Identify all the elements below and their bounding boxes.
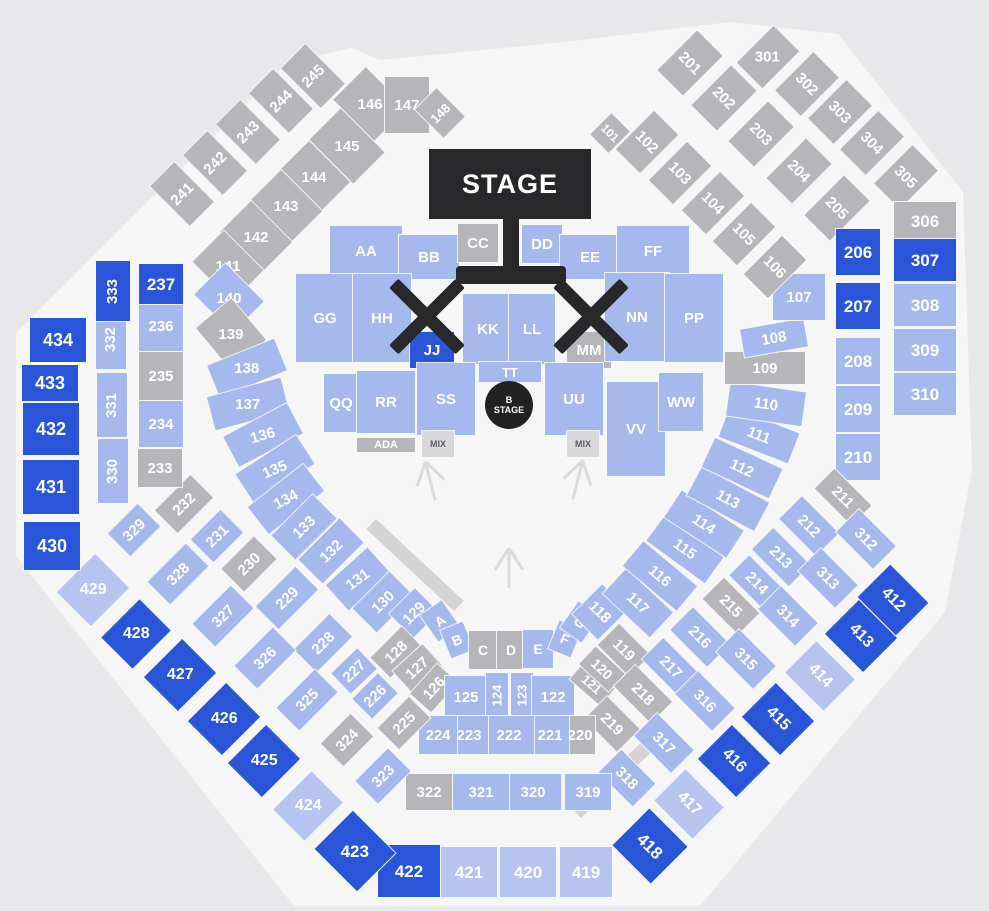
section-label: 309 xyxy=(911,342,939,359)
section-label: WW xyxy=(667,395,695,410)
section-label: 319 xyxy=(575,785,600,800)
section-label: 210 xyxy=(844,449,872,466)
section-E[interactable]: E xyxy=(523,630,553,668)
section-label: 318 xyxy=(613,764,641,792)
section-BB[interactable]: BB xyxy=(399,235,459,279)
section-label: 221 xyxy=(537,728,562,743)
section-label: 413 xyxy=(846,621,876,651)
section-430[interactable]: 430 xyxy=(24,522,80,570)
section-label: 324 xyxy=(333,726,361,754)
b-stage-marker: B STAGE xyxy=(485,381,533,429)
section-432[interactable]: 432 xyxy=(23,403,79,455)
section-308[interactable]: 308 xyxy=(894,284,956,326)
section-label: 126 xyxy=(420,674,448,703)
section-label: LL xyxy=(523,322,541,337)
section-label: 110 xyxy=(753,395,779,413)
section-label: 321 xyxy=(468,785,493,800)
section-222[interactable]: 222 xyxy=(484,716,534,754)
section-label: 142 xyxy=(243,230,268,245)
section-label: 332 xyxy=(104,326,119,351)
section-label: DD xyxy=(531,237,553,252)
section-label: 316 xyxy=(691,687,719,715)
section-220: 220 xyxy=(565,716,595,754)
section-label: 136 xyxy=(249,424,277,445)
section-label: 331 xyxy=(105,392,120,417)
section-label: 328 xyxy=(164,560,192,588)
section-label: 109 xyxy=(752,361,777,376)
section-label: 117 xyxy=(624,589,652,616)
section-UU[interactable]: UU xyxy=(545,363,603,435)
section-label: 322 xyxy=(416,785,441,800)
section-label: 421 xyxy=(455,864,483,881)
section-label: 211 xyxy=(829,483,857,511)
section-label: 217 xyxy=(657,653,685,681)
section-label: 242 xyxy=(201,149,229,177)
section-label: 212 xyxy=(795,512,823,540)
section-C: C xyxy=(469,631,497,669)
section-label: 133 xyxy=(290,513,318,541)
section-306: 306 xyxy=(894,202,956,240)
section-label: 225 xyxy=(390,709,418,737)
section-124[interactable]: 124 xyxy=(486,673,508,717)
section-label: 428 xyxy=(123,626,150,642)
section-label: 113 xyxy=(714,487,742,512)
ada-platform: ADA xyxy=(357,438,415,452)
section-label: 325 xyxy=(293,686,321,714)
section-label: AA xyxy=(355,244,377,259)
section-label: 111 xyxy=(745,424,772,446)
section-FF[interactable]: FF xyxy=(617,226,689,276)
section-236[interactable]: 236 xyxy=(139,301,183,351)
section-label: 416 xyxy=(719,746,749,776)
section-label: 310 xyxy=(911,386,939,403)
section-label: 429 xyxy=(80,582,107,598)
section-label: 305 xyxy=(892,163,920,191)
section-label: 115 xyxy=(671,536,699,562)
section-label: 118 xyxy=(586,598,614,626)
section-GG[interactable]: GG xyxy=(296,274,354,362)
section-label: 308 xyxy=(911,297,939,314)
venue-seat-map: 2452442432422411461471481451441431421411… xyxy=(0,0,989,911)
section-label: 232 xyxy=(170,490,198,518)
section-label: 412 xyxy=(878,585,908,615)
section-label: 101 xyxy=(599,122,622,145)
section-122[interactable]: 122 xyxy=(532,676,574,718)
section-label: UU xyxy=(563,392,585,407)
section-label: 423 xyxy=(341,843,369,860)
section-label: 329 xyxy=(120,516,148,544)
section-label: 333 xyxy=(106,278,121,303)
section-label: 433 xyxy=(35,374,65,392)
section-label: 304 xyxy=(858,129,886,157)
section-label: 323 xyxy=(369,762,397,790)
catwalk-runway xyxy=(503,216,519,272)
section-label: 134 xyxy=(271,487,300,512)
section-210[interactable]: 210 xyxy=(836,434,880,480)
section-label: JJ xyxy=(424,343,441,358)
section-label: EE xyxy=(580,250,600,265)
section-208[interactable]: 208 xyxy=(836,338,880,384)
section-label: 123 xyxy=(515,684,528,706)
section-label: 312 xyxy=(852,525,880,553)
section-206[interactable]: 206 xyxy=(836,229,880,275)
section-125[interactable]: 125 xyxy=(445,676,487,718)
section-label: 418 xyxy=(634,830,666,862)
section-label: 327 xyxy=(209,602,237,630)
section-label: 201 xyxy=(676,49,704,77)
section-SS[interactable]: SS xyxy=(417,363,475,435)
section-label: 236 xyxy=(148,319,173,334)
section-233: 233 xyxy=(138,449,182,487)
section-209[interactable]: 209 xyxy=(836,386,880,432)
section-label: 102 xyxy=(633,128,661,156)
section-label: 414 xyxy=(805,661,835,691)
section-419[interactable]: 419 xyxy=(560,847,612,897)
section-label: 427 xyxy=(167,667,194,683)
section-label: 231 xyxy=(203,522,231,550)
section-RR[interactable]: RR xyxy=(357,371,415,433)
section-label: 213 xyxy=(767,543,795,571)
section-label: 302 xyxy=(793,70,821,98)
section-label: GG xyxy=(313,311,336,326)
section-label: 301 xyxy=(755,50,780,65)
section-CC: CC xyxy=(458,224,498,262)
section-label: 222 xyxy=(496,728,521,743)
section-label: 116 xyxy=(646,562,674,589)
section-label: KK xyxy=(477,322,499,337)
section-label: 313 xyxy=(814,564,842,592)
section-421[interactable]: 421 xyxy=(441,847,497,897)
section-label: 422 xyxy=(395,863,423,880)
section-label: 330 xyxy=(106,458,121,483)
section-PP[interactable]: PP xyxy=(665,274,723,362)
section-310[interactable]: 310 xyxy=(894,373,956,415)
section-237[interactable]: 237 xyxy=(139,264,183,304)
section-label: 204 xyxy=(785,157,813,185)
section-label: HH xyxy=(371,311,393,326)
section-label: 206 xyxy=(844,244,872,261)
section-123[interactable]: 123 xyxy=(511,673,533,717)
section-label: B xyxy=(450,632,465,649)
section-label: 317 xyxy=(650,729,678,757)
section-label: FF xyxy=(644,244,662,259)
section-label: 306 xyxy=(911,213,939,230)
section-TT[interactable]: TT xyxy=(479,362,541,382)
section-label: 119 xyxy=(610,636,638,664)
section-label: 216 xyxy=(686,623,714,651)
section-label: 235 xyxy=(148,369,173,384)
section-label: BB xyxy=(418,250,440,265)
section-label: 219 xyxy=(598,710,626,738)
section-333[interactable]: 333 xyxy=(96,261,130,321)
section-label: 131 xyxy=(343,566,372,593)
section-309[interactable]: 309 xyxy=(894,329,956,371)
section-431[interactable]: 431 xyxy=(23,460,79,514)
section-label: 114 xyxy=(690,511,718,537)
section-434[interactable]: 434 xyxy=(30,318,86,362)
section-label: 420 xyxy=(514,864,542,881)
section-307[interactable]: 307 xyxy=(894,239,956,281)
section-label: 132 xyxy=(317,537,345,565)
section-label: D xyxy=(506,643,516,657)
stage-block: STAGE xyxy=(429,149,591,219)
section-label: MM xyxy=(577,343,602,358)
section-label: 220 xyxy=(567,728,592,743)
section-label: 229 xyxy=(273,584,301,612)
section-label: PP xyxy=(684,311,704,326)
section-label: RR xyxy=(375,395,397,410)
section-label: 230 xyxy=(235,550,263,578)
section-label: 227 xyxy=(340,657,368,685)
section-label: 320 xyxy=(520,785,545,800)
section-label: 137 xyxy=(235,397,260,412)
section-label: 224 xyxy=(425,728,450,743)
section-label: 223 xyxy=(456,728,481,743)
section-234[interactable]: 234 xyxy=(139,401,183,447)
section-label: 148 xyxy=(428,101,453,126)
section-DD[interactable]: DD xyxy=(522,225,562,263)
section-label: QQ xyxy=(329,396,352,411)
section-label: 243 xyxy=(234,118,262,146)
section-label: 143 xyxy=(273,199,298,214)
b-stage-label-line1: B xyxy=(506,395,513,405)
section-label: 303 xyxy=(826,98,854,126)
section-label: 417 xyxy=(674,789,704,819)
section-label: 122 xyxy=(540,690,565,705)
section-322: 322 xyxy=(406,774,452,810)
section-label: NN xyxy=(626,310,648,325)
section-label: 214 xyxy=(743,569,771,597)
section-label: 241 xyxy=(168,180,196,208)
section-109: 109 xyxy=(725,352,805,384)
section-label: 138 xyxy=(234,361,259,376)
section-WW[interactable]: WW xyxy=(659,373,703,431)
section-label: 424 xyxy=(295,798,322,814)
section-label: 145 xyxy=(334,139,359,154)
section-label: 203 xyxy=(747,120,775,148)
section-label: 105 xyxy=(730,220,758,248)
section-D: D xyxy=(497,631,525,669)
section-label: SS xyxy=(436,392,456,407)
section-label: VV xyxy=(626,422,646,437)
section-319[interactable]: 319 xyxy=(565,774,611,810)
section-label: 139 xyxy=(218,327,243,342)
section-label: 207 xyxy=(844,298,872,315)
section-label: 112 xyxy=(728,456,756,480)
section-QQ[interactable]: QQ xyxy=(324,374,358,432)
section-label: CC xyxy=(467,236,489,251)
section-AA[interactable]: AA xyxy=(330,226,402,276)
section-433[interactable]: 433 xyxy=(22,365,78,401)
section-label: 106 xyxy=(761,253,789,281)
section-label: 234 xyxy=(148,417,173,432)
section-label: 315 xyxy=(732,645,760,673)
section-label: 415 xyxy=(763,704,793,734)
section-label: 202 xyxy=(710,84,738,112)
section-label: 124 xyxy=(490,684,503,706)
section-label: TT xyxy=(502,366,518,379)
stage-label: STAGE xyxy=(462,169,558,200)
section-label: 209 xyxy=(844,401,872,418)
section-221[interactable]: 221 xyxy=(531,716,569,754)
section-label: 125 xyxy=(453,690,478,705)
section-label: 103 xyxy=(666,159,694,187)
section-label: 244 xyxy=(267,87,295,115)
section-label: 144 xyxy=(301,170,326,185)
section-label: 419 xyxy=(572,864,600,881)
section-label: 208 xyxy=(844,353,872,370)
entry-arrow-icon-bottom xyxy=(487,542,531,592)
section-LL[interactable]: LL xyxy=(509,294,555,364)
section-321[interactable]: 321 xyxy=(453,774,509,810)
section-label: 146 xyxy=(357,97,382,112)
section-label: 307 xyxy=(911,252,939,269)
section-label: 233 xyxy=(147,461,172,476)
section-label: 108 xyxy=(760,328,787,347)
section-label: 205 xyxy=(823,194,851,222)
section-label: 425 xyxy=(251,753,278,769)
section-label: 434 xyxy=(43,331,73,349)
section-label: 314 xyxy=(774,602,802,630)
section-label: 107 xyxy=(786,290,811,305)
section-label: 228 xyxy=(309,629,337,657)
section-KK[interactable]: KK xyxy=(463,294,513,364)
section-207[interactable]: 207 xyxy=(836,283,880,329)
section-320[interactable]: 320 xyxy=(505,774,561,810)
section-label: 432 xyxy=(36,420,66,438)
section-label: 430 xyxy=(37,537,67,555)
section-label: 218 xyxy=(629,680,657,708)
section-label: C xyxy=(478,643,488,657)
section-235: 235 xyxy=(139,352,183,400)
section-label: 215 xyxy=(717,592,745,620)
catwalk-crossbar xyxy=(456,266,566,284)
section-label: E xyxy=(533,642,542,656)
section-label: 431 xyxy=(36,478,66,496)
section-label: 245 xyxy=(299,62,327,90)
section-label: 326 xyxy=(251,644,279,672)
section-420[interactable]: 420 xyxy=(500,847,556,897)
section-331[interactable]: 331 xyxy=(97,373,127,437)
section-label: 426 xyxy=(211,711,238,727)
section-VV[interactable]: VV xyxy=(607,382,665,476)
b-stage-label-line2: STAGE xyxy=(494,405,524,415)
section-330[interactable]: 330 xyxy=(98,439,128,503)
section-label: 104 xyxy=(699,189,727,217)
section-label: 237 xyxy=(147,276,175,293)
